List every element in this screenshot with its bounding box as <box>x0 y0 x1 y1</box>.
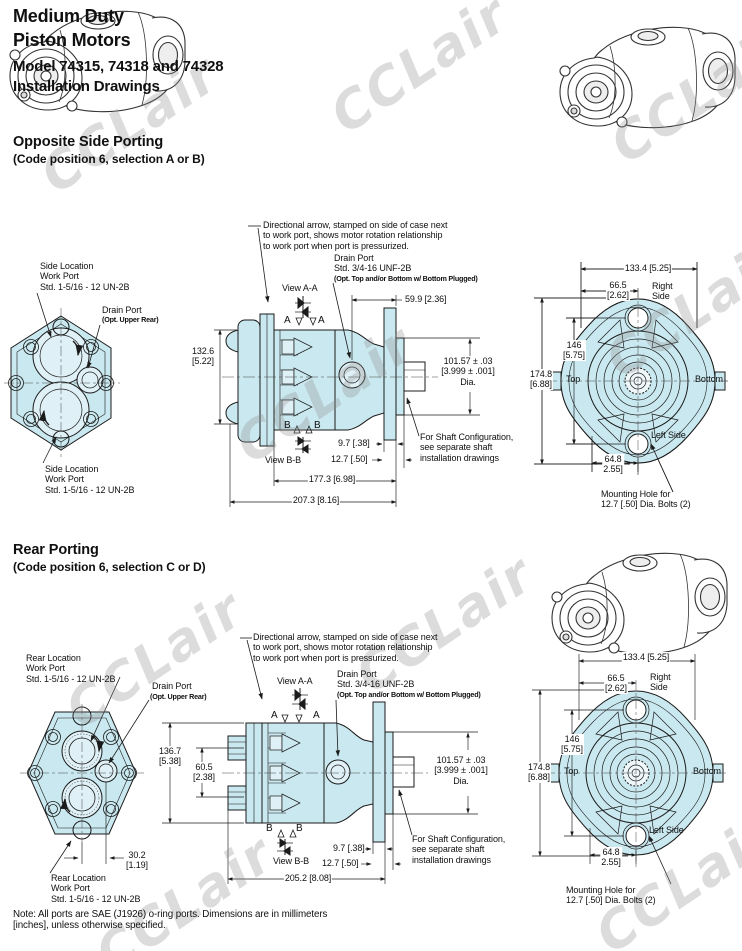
s2-directional-note: Directional arrow, stamped on side of ca… <box>253 632 437 663</box>
s1-flange-bottom-label: Bottom <box>695 374 723 384</box>
s2-dim-60: 60.5 [2.38] <box>192 762 216 783</box>
s2-view-bb-label: View B-B <box>273 856 309 866</box>
s2-dim-30: 30.2 [1.19] <box>126 850 148 871</box>
s1-dim-177: 177.3 [6.98] <box>308 474 356 484</box>
s2-rear-port-view <box>20 677 149 873</box>
s1-dim-97: 9.7 [.38] <box>338 438 370 448</box>
s2-flange-dim-64: 64.8 2.55] <box>600 847 622 868</box>
s2-drain-port-title: Drain Port <box>337 669 377 679</box>
s2-section-letter-a-right: A <box>313 710 320 721</box>
s2-heading: Rear Porting <box>13 542 99 559</box>
page-subtitle-line2: Installation Drawings <box>13 78 160 95</box>
s1-drain-port-spec: Std. 3/4-16 UNF-2B <box>334 263 411 273</box>
s2-drain-left-title: Drain Port <box>152 681 192 691</box>
s2-dim-97: 9.7 [.38] <box>333 843 365 853</box>
s2-flange-right-side: Right Side <box>650 672 671 693</box>
s2-flange-bottom-label: Bottom <box>693 766 721 776</box>
s2-dim-127: 12.7 [.50] <box>322 858 359 868</box>
s1-dim-127: 12.7 [.50] <box>331 454 368 464</box>
s1-section-letter-a-right: A <box>318 315 325 326</box>
s2-dim-101: 101.57 ± .03 [3.999 ± .001] Dia. <box>433 755 489 786</box>
s1-side-port-label-top: Side Location Work Port Std. 1-5/16 - 12… <box>40 261 129 292</box>
s2-flange-mounting-note: Mounting Hole for 12.7 [.50] Dia. Bolts … <box>566 885 656 906</box>
s1-flange-left-side: Left Side <box>651 430 686 440</box>
s1-view-aa-label: View A-A <box>282 283 318 293</box>
s1-drain-left-opt: (Opt. Upper Rear) <box>102 316 159 324</box>
s2-flange-top-label: Top <box>564 766 578 776</box>
s1-dim-207: 207.3 [8.16] <box>292 495 340 505</box>
s1-shaft-note: For Shaft Configuration, see separate sh… <box>420 432 513 463</box>
s2-flange-dim-146: 146 [5.75] <box>560 734 584 755</box>
s1-dim-101: 101.57 ± .03 [3.999 ± .001] Dia. <box>440 356 496 387</box>
s2-flange-dim-133: 133.4 [5.25] <box>622 652 670 662</box>
s1-dim-59: 59.9 [2.36] <box>405 294 446 304</box>
s2-drain-port-opt: (Opt. Top and/or Bottom w/ Bottom Plugge… <box>337 691 481 699</box>
s1-flange-mounting-note: Mounting Hole for 12.7 [.50] Dia. Bolts … <box>601 489 691 510</box>
s1-section-letter-b-left: B <box>284 420 291 431</box>
footnote: Note: All ports are SAE (J1926) o-ring p… <box>13 909 327 931</box>
s2-dim-205: 205.2 [8.08] <box>284 873 332 883</box>
s1-drain-port-title: Drain Port <box>334 253 374 263</box>
s1-side-port-label-bottom: Side Location Work Port Std. 1-5/16 - 12… <box>45 464 134 495</box>
s2-drain-left-opt: (Opt. Upper Rear) <box>150 693 207 701</box>
s2-flange-dim-174: 174.8 [6.88] <box>527 762 551 783</box>
s1-flange-dim-146: 146 [5.75] <box>562 340 586 361</box>
s2-flange-dim-66: 66.5 [2.62] <box>604 673 628 694</box>
s2-section-letter-b-right: B <box>296 823 303 834</box>
s1-subheading: (Code position 6, selection A or B) <box>13 153 205 167</box>
s2-section-letter-a-left: A <box>271 710 278 721</box>
s2-rear-port-label-bottom: Rear Location Work Port Std. 1-5/16 - 12… <box>51 873 140 904</box>
s1-flange-dim-133: 133.4 [5.25] <box>624 263 672 273</box>
s1-drain-port-opt: (Opt. Top and/or Bottom w/ Bottom Plugge… <box>334 275 478 283</box>
s1-heading: Opposite Side Porting <box>13 134 163 151</box>
s1-drain-left-title: Drain Port <box>102 305 142 315</box>
page-subtitle-line1: Model 74315, 74318 and 74328 <box>13 58 223 75</box>
s1-flange-top-label: Top <box>566 374 580 384</box>
s1-flange-right-side: Right Side <box>652 281 673 302</box>
s2-dim-136: 136.7 [5.38] <box>158 746 182 767</box>
s2-section-letter-b-left: B <box>266 823 273 834</box>
s2-view-aa-label: View A-A <box>277 676 313 686</box>
s2-rear-port-label-top: Rear Location Work Port Std. 1-5/16 - 12… <box>26 653 115 684</box>
s1-section-letter-a-left: A <box>284 315 291 326</box>
s2-shaft-note: For Shaft Configuration, see separate sh… <box>412 834 505 865</box>
s1-view-bb-label: View B-B <box>265 455 301 465</box>
s1-section-letter-b-right: B <box>314 420 321 431</box>
page-title-line1: Medium Duty <box>13 6 124 27</box>
s1-flange-dim-174: 174.8 [6.88] <box>529 369 553 390</box>
s2-flange-left-side: Left Side <box>649 825 684 835</box>
s1-directional-note: Directional arrow, stamped on side of ca… <box>263 220 447 251</box>
s1-dim-132: 132.6 [5.22] <box>192 346 214 367</box>
catalog-page: CCLair CCLair CCLair CCLair CCLair CCLai… <box>0 0 742 951</box>
s1-flange-dim-66: 66.5 [2.62] <box>606 280 630 301</box>
page-title-line2: Piston Motors <box>13 30 130 51</box>
s2-subheading: (Code position 6, selection C or D) <box>13 561 206 575</box>
s1-flange-dim-64: 64.8 2.55] <box>602 454 624 475</box>
s2-drain-port-spec: Std. 3/4-16 UNF-2B <box>337 679 414 689</box>
